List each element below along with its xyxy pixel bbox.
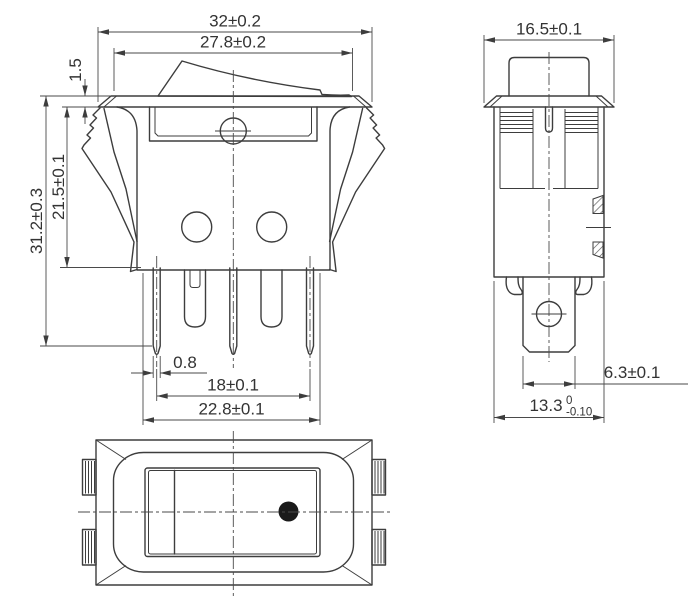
- dim-label-side-body-width: 13.3: [529, 396, 562, 415]
- dim-label-terminal-width: 6.3±0.1: [604, 363, 661, 382]
- front-centerlines: [157, 70, 310, 368]
- front-flange: [98, 96, 372, 107]
- bottom-view: [78, 431, 390, 596]
- dim-label-outer-pin-spacing: 18±0.1: [207, 376, 259, 395]
- bottom-outer-body: [96, 440, 372, 585]
- rocker-switch-technical-drawing: 32±0.2 27.8±0.2 1.5 21.5±0.1 31.2±0.3: [0, 0, 692, 606]
- front-rocker-actuator: [158, 61, 352, 97]
- side-view: 16.5±0.1 6.3±0.1 13.3 0 -0.10: [484, 20, 688, 424]
- dim-label-flange-outer-width: 32±0.2: [209, 12, 261, 31]
- bottom-corner-bevels: [96, 440, 372, 585]
- side-body: [494, 107, 611, 277]
- dim-label-side-body-width-tol-lower: -0.10: [566, 407, 592, 419]
- bottom-indicator-dot: [279, 502, 299, 522]
- front-dimensions: 32±0.2 27.8±0.2 1.5 21.5±0.1 31.2±0.3: [27, 12, 372, 426]
- dim-label-flange-to-body-bottom: 21.5±0.1: [49, 154, 68, 220]
- side-retention-lug: [586, 196, 611, 259]
- front-view: 32±0.2 27.8±0.2 1.5 21.5±0.1 31.2±0.3: [27, 12, 385, 426]
- front-right-hole: [257, 212, 287, 242]
- dim-label-side-body-width-tol-upper: 0: [566, 395, 572, 407]
- dim-label-side-flange-width: 16.5±0.1: [516, 20, 582, 39]
- side-dimensions: 16.5±0.1 6.3±0.1 13.3 0 -0.10: [484, 20, 688, 424]
- dim-label-pin-thickness: 0.8: [173, 353, 197, 372]
- dim-label-flange-thickness: 1.5: [66, 58, 85, 82]
- bottom-centerlines: [78, 431, 390, 596]
- dim-label-flange-top-width: 27.8±0.2: [200, 33, 266, 52]
- dim-label-base-width: 22.8±0.1: [198, 400, 264, 419]
- drawing-svg: 32±0.2 27.8±0.2 1.5 21.5±0.1 31.2±0.3: [0, 0, 692, 606]
- dim-label-total-height: 31.2±0.3: [27, 188, 46, 254]
- front-left-hole: [182, 212, 212, 242]
